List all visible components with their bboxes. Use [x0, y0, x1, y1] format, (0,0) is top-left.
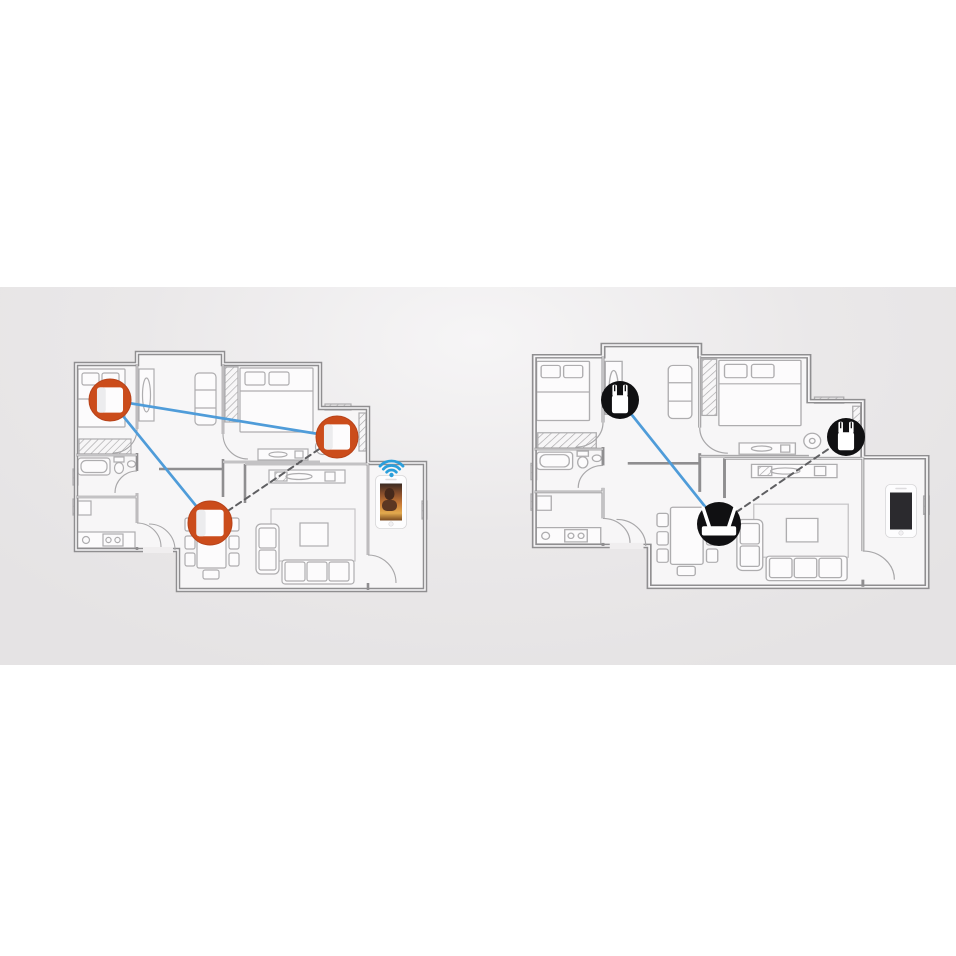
router-body	[702, 526, 736, 535]
smartphone	[886, 485, 917, 538]
video-person-head	[385, 488, 395, 500]
phone-screen-off	[890, 493, 912, 530]
extender-device	[827, 418, 865, 456]
mesh-node-device	[188, 501, 232, 545]
mesh-node-shading	[324, 424, 333, 449]
router-device	[697, 502, 741, 546]
product-comparison-image	[0, 0, 956, 956]
video-person-body	[382, 500, 397, 511]
smartphone	[376, 476, 407, 529]
mesh-node-shading	[97, 387, 106, 412]
comparison-floorplans	[0, 0, 956, 956]
mesh-node-shading	[196, 510, 205, 536]
extender-body	[838, 432, 854, 450]
mesh-node-device	[89, 379, 131, 421]
phone-home-button	[389, 522, 393, 526]
extender-device	[601, 381, 639, 419]
mesh-node-device	[316, 416, 358, 458]
phone-home-button	[899, 531, 903, 535]
extender-body	[612, 395, 628, 413]
house-floorplan-right	[531, 345, 929, 587]
